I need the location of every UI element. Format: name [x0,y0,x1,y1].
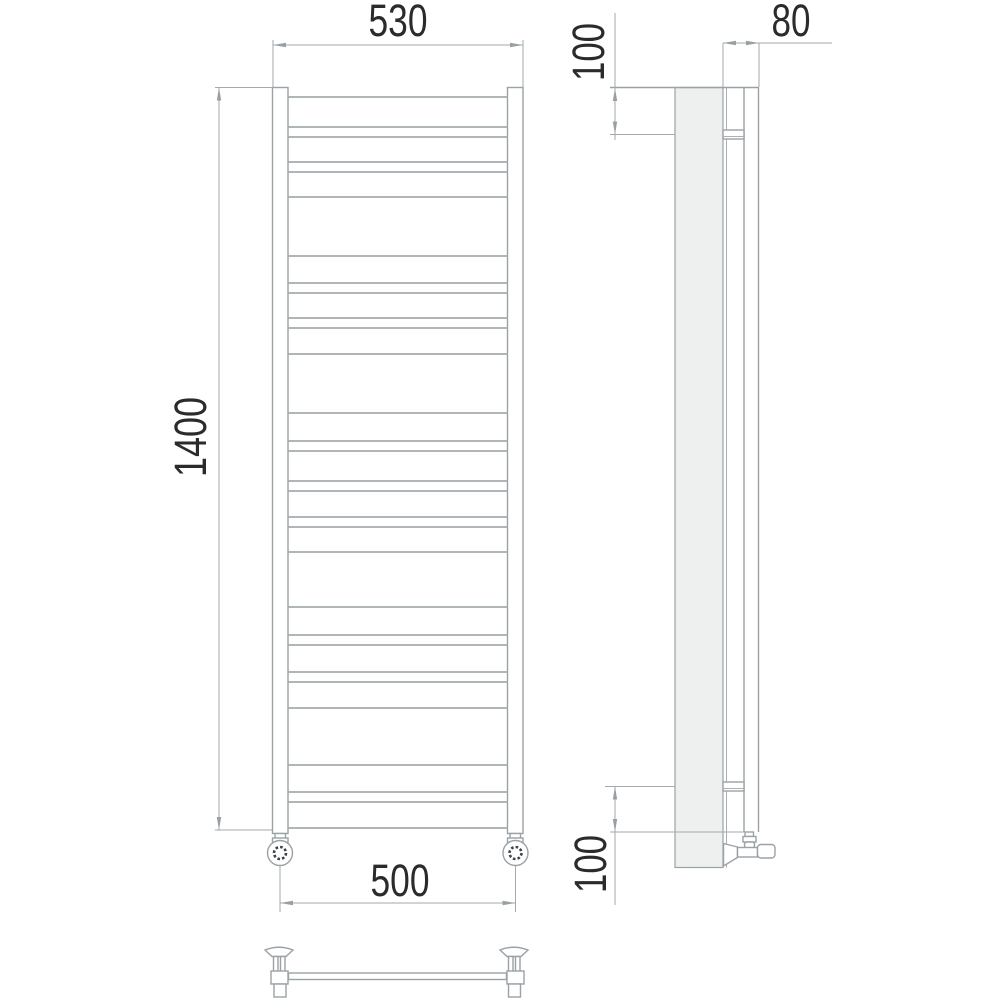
bracket-body [723,130,744,139]
rung-group [288,97,508,828]
front-right-tube [508,88,524,834]
arrowhead-left [723,41,736,45]
arrowhead-down [613,819,617,832]
arrowhead-down [217,817,221,830]
arrowhead-right [503,901,516,905]
dimension-label-100-bottom: 100 [565,835,616,893]
fitting-stem [274,957,279,972]
fitting-base [274,984,286,997]
bottom-view [265,947,528,997]
fitting-base [509,984,521,997]
fitting-body [271,971,288,984]
bracket-body [723,782,744,791]
dimension-500: 500 [280,855,516,912]
valve-flange [724,844,738,867]
arrowhead-left [273,43,286,47]
valve-neck [738,848,758,858]
drawing-svg: 530 1400 500 80 100 [0,0,1000,1000]
fitting-body [507,971,524,984]
arrowhead-left [280,901,293,905]
fitting-stem [516,957,521,972]
fitting-flange [500,947,528,956]
dimension-label-100-top: 100 [563,23,614,81]
front-view [268,88,529,866]
dimension-100-top: 100 [563,13,675,140]
arrowhead-down [613,122,617,135]
dimension-label-530: 530 [369,0,428,46]
dimension-1400: 1400 [165,88,273,831]
dimension-80: 80 [723,0,832,87]
front-right-valve [503,834,528,866]
bottom-left-fitting [265,947,293,997]
fitting-collar-wide [743,837,756,843]
dimension-530: 530 [273,0,523,87]
arrowhead-up [613,88,617,101]
arrowhead-up [217,88,221,101]
technical-drawing: 530 1400 500 80 100 [0,0,1000,1000]
side-lower-bracket [723,782,744,791]
arrowhead-right [746,41,759,45]
bottom-right-fitting [500,947,528,997]
valve-knurl [274,847,286,859]
fitting-stem [281,957,286,972]
dimension-label-1400: 1400 [165,397,216,477]
side-panel [675,88,723,868]
front-left-valve [268,834,293,866]
front-left-tube [273,88,289,834]
dimension-label-80: 80 [772,0,811,46]
valve-knurl [510,847,522,859]
arrowhead-right [510,43,523,47]
bottom-tube [289,973,507,980]
dimension-label-500: 500 [371,855,430,906]
side-view [610,88,775,868]
side-upper-bracket [723,130,744,139]
side-valve-assembly [724,832,776,866]
fitting-flange [265,947,293,956]
arrowhead-up [613,787,617,800]
valve-knob [758,845,776,859]
fitting-stem [509,957,514,972]
